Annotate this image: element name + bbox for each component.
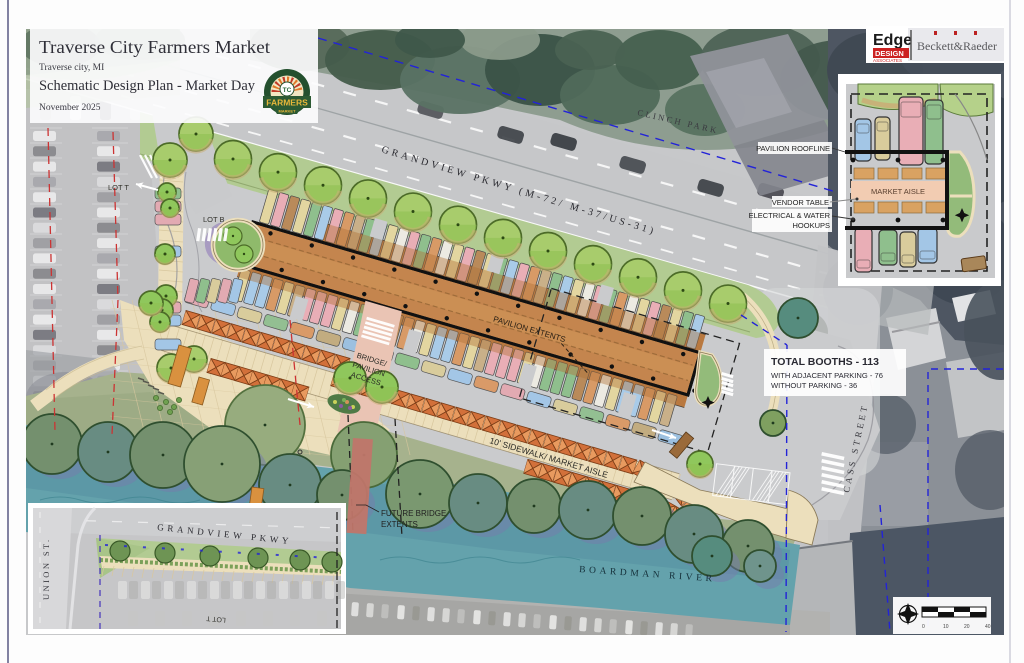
svg-text:LOT T: LOT T [108, 183, 129, 192]
svg-text:ASSOCIATES: ASSOCIATES [873, 58, 902, 63]
svg-text:Traverse City Farmers Market: Traverse City Farmers Market [39, 37, 270, 57]
svg-text:ELECTRICAL & WATER: ELECTRICAL & WATER [749, 211, 831, 220]
svg-text:Schematic Design Plan - Market: Schematic Design Plan - Market Day [39, 78, 255, 94]
svg-text:EXTENTS: EXTENTS [381, 520, 418, 529]
svg-text:PAVILION ROOFLINE: PAVILION ROOFLINE [756, 144, 830, 153]
svg-text:Beckett&Raeder: Beckett&Raeder [917, 39, 997, 53]
svg-text:FUTURE BRIDGE: FUTURE BRIDGE [381, 509, 446, 518]
svg-text:40: 40 [985, 624, 991, 630]
svg-text:November 2025: November 2025 [39, 103, 101, 113]
svg-text:WITH ADJACENT PARKING - 76: WITH ADJACENT PARKING - 76 [771, 371, 883, 380]
svg-text:TOTAL BOOTHS - 113: TOTAL BOOTHS - 113 [771, 356, 879, 368]
svg-text:20: 20 [964, 624, 970, 630]
svg-text:HOOKUPS: HOOKUPS [792, 221, 830, 230]
svg-text:WITHOUT PARKING - 36: WITHOUT PARKING - 36 [771, 381, 857, 390]
svg-text:FARMERS: FARMERS [266, 98, 308, 108]
svg-text:UNION ST.: UNION ST. [41, 537, 51, 600]
svg-text:10: 10 [943, 624, 949, 630]
svg-text:Edge: Edge [873, 32, 912, 49]
svg-text:LOT B: LOT B [203, 215, 225, 224]
svg-text:TC: TC [283, 87, 292, 94]
svg-text:MARKET: MARKET [278, 109, 296, 114]
svg-text:Traverse city, MI: Traverse city, MI [39, 63, 104, 73]
svg-text:DESIGN: DESIGN [875, 49, 904, 58]
svg-text:0: 0 [922, 624, 925, 630]
svg-text:MARKET AISLE: MARKET AISLE [871, 187, 925, 196]
svg-text:VENDOR TABLE: VENDOR TABLE [772, 198, 829, 207]
